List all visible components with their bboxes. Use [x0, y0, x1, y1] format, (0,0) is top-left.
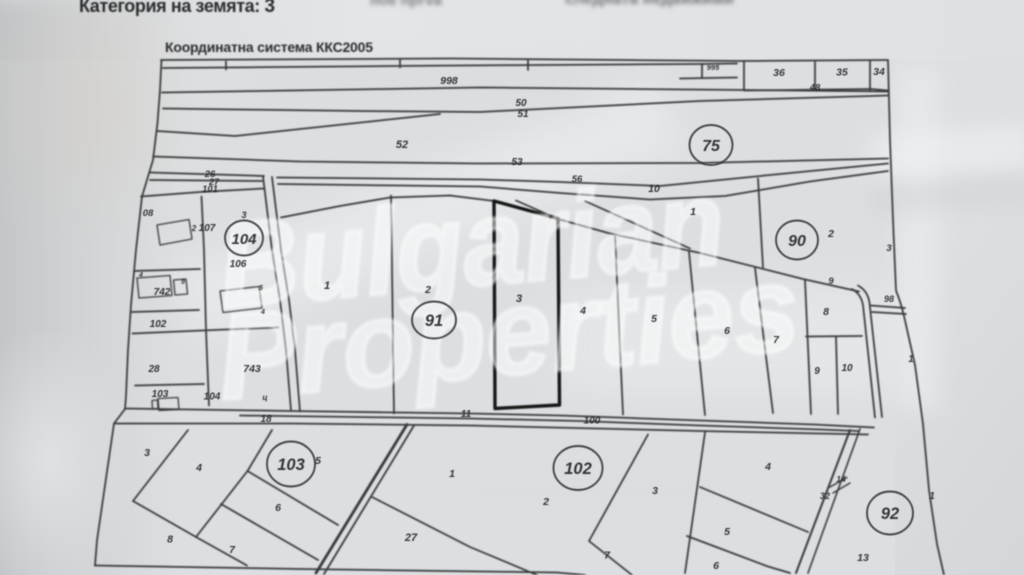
svg-text:7: 7 [604, 550, 611, 562]
svg-text:7: 7 [229, 544, 236, 556]
svg-text:743: 743 [243, 363, 261, 375]
svg-text:3: 3 [516, 293, 522, 305]
svg-text:104: 104 [204, 392, 221, 403]
svg-text:2: 2 [827, 228, 834, 240]
svg-text:103: 103 [152, 389, 169, 400]
svg-text:6: 6 [275, 502, 281, 514]
svg-text:104: 104 [231, 231, 257, 248]
svg-text:6: 6 [724, 325, 730, 337]
svg-text:10: 10 [841, 363, 853, 374]
svg-text:18: 18 [260, 414, 272, 425]
svg-text:51: 51 [517, 109, 529, 120]
svg-text:8: 8 [167, 534, 173, 546]
svg-text:4: 4 [138, 272, 143, 279]
svg-text:107: 107 [199, 223, 216, 234]
svg-text:1: 1 [324, 280, 330, 292]
svg-text:102: 102 [150, 319, 167, 330]
svg-text:98: 98 [884, 294, 894, 304]
svg-text:11: 11 [461, 409, 472, 420]
svg-text:5: 5 [315, 455, 321, 467]
svg-text:9: 9 [181, 279, 185, 286]
svg-text:90: 90 [788, 233, 806, 250]
svg-text:3: 3 [144, 447, 150, 459]
svg-text:08: 08 [143, 208, 154, 219]
svg-text:1: 1 [690, 206, 696, 218]
svg-text:998: 998 [440, 75, 458, 87]
svg-text:13: 13 [857, 552, 869, 564]
svg-text:742: 742 [154, 287, 171, 298]
svg-text:53: 53 [511, 157, 523, 168]
svg-text:100: 100 [584, 416, 601, 427]
svg-text:9: 9 [814, 366, 820, 377]
svg-text:8: 8 [823, 306, 829, 318]
svg-text:75: 75 [702, 138, 721, 155]
svg-text:50: 50 [515, 98, 527, 109]
svg-text:48: 48 [809, 83, 821, 94]
svg-text:2: 2 [424, 284, 431, 296]
svg-text:1: 1 [929, 491, 935, 502]
svg-text:2: 2 [542, 496, 549, 508]
svg-text:4: 4 [764, 461, 771, 473]
svg-text:5: 5 [724, 526, 730, 538]
svg-text:91: 91 [425, 312, 443, 330]
svg-text:4: 4 [195, 462, 202, 474]
svg-text:28: 28 [147, 364, 160, 375]
svg-text:92: 92 [881, 505, 899, 523]
svg-text:34: 34 [873, 66, 885, 78]
svg-text:35: 35 [836, 67, 848, 79]
svg-text:5: 5 [651, 313, 657, 325]
svg-text:1: 1 [908, 354, 914, 365]
svg-text:3: 3 [886, 243, 892, 254]
svg-text:101: 101 [202, 184, 218, 195]
svg-text:6: 6 [713, 560, 719, 572]
svg-text:5: 5 [259, 285, 263, 292]
svg-text:32: 32 [820, 491, 830, 501]
svg-text:10: 10 [648, 183, 660, 195]
svg-text:36: 36 [773, 67, 785, 79]
svg-text:2: 2 [191, 224, 197, 233]
svg-text:52: 52 [396, 139, 408, 151]
svg-text:ц: ц [262, 393, 267, 402]
svg-text:14: 14 [836, 474, 846, 484]
svg-text:106: 106 [230, 259, 247, 270]
svg-text:103: 103 [277, 456, 305, 474]
svg-text:56: 56 [572, 174, 583, 185]
svg-text:102: 102 [564, 460, 592, 478]
svg-text:7: 7 [773, 334, 780, 346]
svg-text:4: 4 [260, 309, 265, 316]
svg-text:27: 27 [404, 532, 418, 544]
svg-text:995: 995 [707, 63, 720, 72]
svg-text:3: 3 [652, 485, 658, 497]
svg-text:9: 9 [828, 276, 834, 287]
svg-text:3: 3 [241, 210, 246, 220]
svg-text:4: 4 [579, 305, 586, 317]
svg-text:1: 1 [449, 468, 455, 480]
